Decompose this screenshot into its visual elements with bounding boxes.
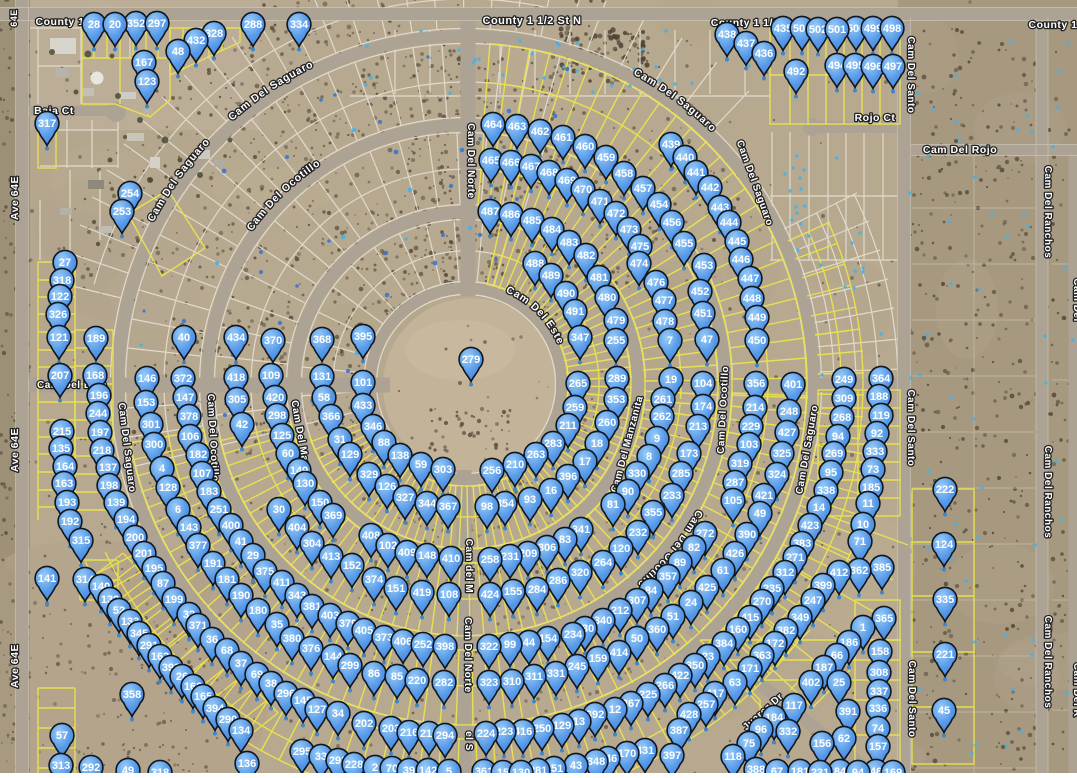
svg-text:105: 105 (724, 495, 742, 507)
svg-text:451: 451 (694, 308, 712, 320)
svg-text:24: 24 (685, 597, 698, 609)
svg-text:168: 168 (86, 370, 104, 382)
svg-text:183: 183 (200, 486, 218, 498)
svg-text:182: 182 (189, 449, 207, 461)
svg-text:8: 8 (646, 451, 652, 463)
svg-text:193: 193 (58, 497, 76, 509)
svg-text:40: 40 (178, 332, 190, 344)
svg-text:436: 436 (755, 48, 773, 60)
svg-text:82: 82 (688, 542, 700, 554)
svg-text:414: 414 (610, 647, 629, 659)
svg-text:Cam del M: Cam del M (463, 539, 474, 594)
svg-text:418: 418 (227, 372, 245, 384)
svg-text:146: 146 (138, 373, 156, 385)
svg-text:103: 103 (740, 439, 758, 451)
svg-text:121: 121 (50, 332, 68, 344)
svg-text:461: 461 (554, 132, 572, 144)
svg-text:426: 426 (726, 548, 744, 560)
svg-text:319: 319 (731, 458, 749, 470)
svg-text:194: 194 (117, 514, 136, 526)
svg-text:258: 258 (481, 554, 499, 566)
svg-text:234: 234 (564, 629, 583, 641)
svg-text:479: 479 (607, 315, 625, 327)
svg-text:284: 284 (528, 584, 547, 596)
svg-text:191: 191 (204, 558, 222, 570)
svg-text:478: 478 (656, 316, 674, 328)
svg-text:420: 420 (266, 392, 284, 404)
svg-text:450: 450 (748, 335, 766, 347)
svg-text:50: 50 (631, 633, 643, 645)
svg-text:264: 264 (594, 557, 613, 569)
svg-text:367: 367 (439, 501, 457, 513)
svg-text:197: 197 (91, 427, 109, 439)
svg-text:368: 368 (313, 334, 331, 346)
svg-text:308: 308 (870, 667, 888, 679)
svg-text:442: 442 (701, 182, 719, 194)
svg-text:356: 356 (747, 378, 765, 390)
svg-text:330: 330 (628, 468, 646, 480)
svg-text:199: 199 (165, 594, 183, 606)
svg-text:396: 396 (559, 471, 577, 483)
svg-text:452: 452 (691, 286, 709, 298)
svg-text:44: 44 (523, 637, 536, 649)
svg-text:301: 301 (142, 419, 160, 431)
svg-text:126: 126 (378, 481, 396, 493)
svg-text:473: 473 (620, 224, 638, 236)
svg-text:151: 151 (387, 583, 405, 595)
svg-text:344: 344 (418, 498, 437, 510)
svg-text:453: 453 (695, 260, 713, 272)
svg-text:303: 303 (434, 464, 452, 476)
svg-text:125: 125 (273, 430, 291, 442)
svg-text:492: 492 (787, 66, 805, 78)
svg-text:352: 352 (127, 18, 145, 30)
svg-text:49: 49 (754, 508, 766, 520)
svg-text:437: 437 (737, 38, 755, 50)
svg-text:410: 410 (442, 553, 460, 565)
svg-text:122: 122 (51, 291, 69, 303)
svg-text:171: 171 (741, 663, 759, 675)
svg-text:102: 102 (379, 540, 397, 552)
svg-text:501: 501 (828, 24, 846, 36)
svg-text:37: 37 (235, 658, 247, 670)
svg-text:466: 466 (502, 157, 520, 169)
svg-text:93: 93 (524, 494, 536, 506)
svg-text:347: 347 (571, 332, 589, 344)
svg-text:455: 455 (675, 238, 693, 250)
svg-text:148: 148 (418, 550, 436, 562)
svg-text:329: 329 (360, 469, 378, 481)
svg-text:124: 124 (935, 539, 954, 551)
svg-text:245: 245 (568, 661, 586, 673)
svg-text:71: 71 (854, 536, 866, 548)
svg-text:Cam Del R: Cam Del R (1071, 663, 1077, 718)
svg-text:61: 61 (717, 565, 729, 577)
svg-text:315: 315 (72, 535, 90, 547)
svg-text:64E: 64E (9, 9, 19, 27)
svg-text:Cam Del Ranchos: Cam Del Ranchos (1042, 616, 1053, 709)
svg-text:286: 286 (549, 575, 567, 587)
svg-text:73: 73 (867, 464, 879, 476)
svg-text:486: 486 (502, 209, 520, 221)
svg-text:14: 14 (813, 502, 826, 514)
svg-text:152: 152 (343, 560, 361, 572)
svg-text:232: 232 (629, 527, 647, 539)
svg-text:68: 68 (221, 645, 233, 657)
svg-text:244: 244 (89, 408, 108, 420)
svg-text:423: 423 (801, 520, 819, 532)
svg-text:327: 327 (396, 492, 414, 504)
svg-text:29: 29 (247, 550, 259, 562)
svg-text:355: 355 (644, 507, 662, 519)
svg-text:384: 384 (715, 638, 734, 650)
svg-text:480: 480 (598, 292, 616, 304)
svg-text:458: 458 (615, 168, 633, 180)
svg-text:398: 398 (436, 641, 454, 653)
svg-text:268: 268 (833, 412, 851, 424)
svg-text:447: 447 (741, 273, 759, 285)
svg-text:123: 123 (138, 76, 156, 88)
svg-text:370: 370 (264, 335, 282, 347)
svg-text:County 1: County 1 (36, 16, 85, 28)
svg-text:189: 189 (87, 333, 105, 345)
svg-text:390: 390 (738, 529, 756, 541)
svg-text:285: 285 (672, 468, 690, 480)
svg-text:147: 147 (176, 392, 194, 404)
svg-text:445: 445 (728, 236, 746, 248)
svg-text:324: 324 (768, 469, 787, 481)
svg-text:497: 497 (884, 61, 902, 73)
svg-text:51: 51 (667, 611, 679, 623)
svg-text:4: 4 (159, 463, 166, 475)
svg-text:159: 159 (589, 653, 607, 665)
svg-text:Cam Del Santo: Cam Del Santo (906, 660, 917, 737)
svg-text:7: 7 (667, 335, 673, 347)
svg-text:Cam Del Norte: Cam Del Norte (462, 617, 473, 692)
svg-text:Cam Del Ranchos: Cam Del Ranchos (1042, 446, 1053, 539)
svg-text:481: 481 (590, 272, 608, 284)
svg-text:372: 372 (174, 373, 192, 385)
svg-text:87: 87 (157, 578, 169, 590)
svg-text:299: 299 (341, 660, 359, 672)
svg-text:331: 331 (547, 668, 565, 680)
svg-text:483: 483 (560, 237, 578, 249)
svg-text:137: 137 (99, 462, 117, 474)
svg-text:98: 98 (481, 501, 493, 513)
svg-text:19: 19 (665, 374, 677, 386)
svg-text:Ave 64E: Ave 64E (9, 644, 21, 688)
svg-text:449: 449 (748, 312, 766, 324)
svg-text:213: 213 (689, 421, 707, 433)
svg-text:Cam Del Santo: Cam Del Santo (905, 36, 916, 113)
svg-text:130: 130 (296, 478, 314, 490)
svg-text:129: 129 (341, 449, 359, 461)
svg-text:108: 108 (440, 589, 458, 601)
svg-text:482: 482 (577, 250, 595, 262)
svg-text:353: 353 (607, 394, 625, 406)
svg-text:1: 1 (860, 622, 866, 634)
svg-text:104: 104 (694, 378, 713, 390)
svg-text:30: 30 (273, 504, 285, 516)
svg-text:376: 376 (302, 643, 320, 655)
svg-text:155: 155 (504, 586, 522, 598)
svg-text:438: 438 (718, 29, 736, 41)
svg-text:456: 456 (663, 217, 681, 229)
svg-text:Cam Del Ranchos: Cam Del Ranchos (1042, 166, 1053, 259)
svg-text:269: 269 (825, 448, 843, 460)
svg-text:256: 256 (483, 465, 501, 477)
svg-text:444: 444 (720, 217, 739, 229)
svg-text:Cam Del Santo: Cam Del Santo (905, 389, 916, 466)
svg-text:434: 434 (227, 332, 246, 344)
svg-text:322: 322 (480, 641, 498, 653)
svg-text:409: 409 (398, 547, 416, 559)
svg-text:254: 254 (121, 188, 140, 200)
svg-text:35: 35 (271, 619, 283, 631)
svg-text:485: 485 (523, 215, 541, 227)
svg-text:380: 380 (283, 633, 301, 645)
svg-text:95: 95 (825, 467, 837, 479)
svg-text:446: 446 (732, 254, 750, 266)
svg-text:163: 163 (55, 478, 73, 490)
svg-text:173: 173 (680, 448, 698, 460)
svg-text:365: 365 (875, 613, 893, 625)
svg-text:432: 432 (187, 35, 205, 47)
svg-text:86: 86 (368, 668, 380, 680)
svg-text:210: 210 (506, 459, 524, 471)
svg-text:229: 229 (742, 421, 760, 433)
svg-text:362: 362 (850, 565, 868, 577)
svg-text:385: 385 (873, 562, 891, 574)
svg-text:470: 470 (574, 184, 592, 196)
svg-text:20: 20 (109, 19, 121, 31)
svg-text:441: 441 (687, 167, 705, 179)
svg-text:472: 472 (607, 208, 625, 220)
svg-text:378: 378 (180, 411, 198, 423)
svg-text:317: 317 (38, 118, 56, 130)
svg-text:253: 253 (113, 206, 131, 218)
svg-text:395: 395 (354, 331, 372, 343)
svg-text:263: 263 (527, 449, 545, 461)
svg-text:Ave 64E: Ave 64E (9, 428, 21, 472)
svg-text:498: 498 (883, 23, 901, 35)
svg-text:119: 119 (872, 410, 890, 422)
svg-text:427: 427 (778, 427, 796, 439)
svg-text:88: 88 (378, 437, 390, 449)
svg-text:300: 300 (145, 439, 163, 451)
svg-text:180: 180 (249, 605, 267, 617)
svg-text:457: 457 (634, 183, 652, 195)
svg-text:252: 252 (414, 639, 432, 651)
svg-text:425: 425 (698, 582, 716, 594)
svg-text:305: 305 (228, 394, 246, 406)
svg-text:154: 154 (539, 633, 558, 645)
svg-text:491: 491 (566, 306, 584, 318)
svg-text:448: 448 (743, 293, 761, 305)
svg-text:6: 6 (175, 504, 181, 516)
svg-text:County 1: County 1 (1029, 19, 1077, 31)
svg-text:County 1 1/2 St N: County 1 1/2 St N (483, 15, 582, 27)
svg-text:463: 463 (508, 121, 526, 133)
svg-text:360: 360 (648, 624, 666, 636)
svg-text:464: 464 (484, 119, 503, 131)
svg-text:el S: el S (463, 731, 474, 751)
svg-text:405: 405 (355, 625, 373, 637)
svg-text:377: 377 (189, 540, 207, 552)
svg-text:496: 496 (864, 61, 882, 73)
svg-text:Cam Del Rojo: Cam Del Rojo (923, 144, 997, 156)
svg-text:298: 298 (268, 410, 286, 422)
svg-text:192: 192 (61, 516, 79, 528)
svg-text:231: 231 (501, 551, 519, 563)
svg-text:374: 374 (365, 574, 384, 586)
svg-text:60: 60 (282, 448, 294, 460)
svg-text:413: 413 (322, 551, 340, 563)
svg-text:211: 211 (559, 420, 577, 432)
svg-text:406: 406 (394, 636, 412, 648)
svg-text:158: 158 (871, 646, 889, 658)
svg-text:47: 47 (701, 334, 713, 346)
svg-text:167: 167 (135, 57, 153, 69)
svg-text:11: 11 (862, 498, 874, 510)
svg-text:190: 190 (232, 590, 250, 602)
svg-text:335: 335 (936, 594, 954, 606)
svg-text:259: 259 (566, 402, 584, 414)
svg-text:333: 333 (866, 446, 884, 458)
svg-text:366: 366 (322, 411, 340, 423)
svg-text:233: 233 (663, 490, 681, 502)
svg-text:99: 99 (504, 639, 516, 651)
svg-text:139: 139 (107, 497, 125, 509)
svg-text:214: 214 (746, 402, 765, 414)
svg-text:289: 289 (608, 373, 626, 385)
svg-text:255: 255 (607, 335, 625, 347)
svg-text:128: 128 (159, 482, 177, 494)
svg-text:90: 90 (622, 486, 634, 498)
svg-text:247: 247 (804, 595, 822, 607)
svg-text:260: 260 (598, 417, 616, 429)
svg-text:312: 312 (776, 567, 794, 579)
svg-text:357: 357 (659, 571, 677, 583)
svg-text:174: 174 (694, 401, 713, 413)
svg-text:460: 460 (576, 141, 594, 153)
svg-text:279: 279 (462, 354, 480, 366)
svg-text:249: 249 (835, 374, 853, 386)
svg-text:433: 433 (354, 400, 372, 412)
svg-text:42: 42 (236, 419, 248, 431)
svg-text:92: 92 (871, 428, 883, 440)
svg-text:Rojo Ct: Rojo Ct (855, 112, 896, 124)
svg-text:412: 412 (830, 567, 848, 579)
svg-text:265: 265 (569, 378, 587, 390)
svg-text:196: 196 (90, 390, 108, 402)
svg-text:Cam Del: Cam Del (1071, 278, 1077, 322)
svg-text:401: 401 (784, 379, 802, 391)
svg-text:59: 59 (415, 459, 427, 471)
svg-text:Cam Del Norte: Cam Del Norte (465, 123, 476, 198)
svg-text:490: 490 (557, 288, 575, 300)
svg-text:188: 188 (870, 391, 888, 403)
svg-text:106: 106 (181, 431, 199, 443)
svg-text:364: 364 (872, 373, 891, 385)
svg-text:58: 58 (318, 392, 330, 404)
svg-text:465: 465 (482, 155, 500, 167)
svg-text:326: 326 (49, 309, 67, 321)
svg-text:221: 221 (936, 649, 954, 661)
svg-text:81: 81 (607, 499, 619, 511)
svg-text:487: 487 (481, 206, 499, 218)
svg-text:107: 107 (193, 468, 211, 480)
svg-text:334: 334 (290, 19, 309, 31)
svg-text:304: 304 (303, 538, 322, 550)
svg-text:16: 16 (545, 485, 557, 497)
svg-text:454: 454 (650, 199, 669, 211)
svg-text:181: 181 (218, 574, 236, 586)
svg-text:404: 404 (288, 522, 307, 534)
svg-text:143: 143 (180, 522, 198, 534)
svg-text:9: 9 (654, 433, 660, 445)
svg-text:476: 476 (647, 277, 665, 289)
svg-text:131: 131 (313, 371, 331, 383)
svg-text:207: 207 (51, 370, 69, 382)
svg-text:459: 459 (597, 152, 615, 164)
svg-text:153: 153 (137, 397, 155, 409)
svg-text:489: 489 (542, 270, 560, 282)
svg-text:101: 101 (354, 377, 372, 389)
svg-text:477: 477 (655, 295, 673, 307)
svg-text:474: 474 (630, 258, 649, 270)
svg-text:135: 135 (52, 443, 70, 455)
svg-text:248: 248 (780, 406, 798, 418)
svg-text:419: 419 (413, 587, 431, 599)
svg-text:17: 17 (579, 456, 591, 468)
svg-text:262: 262 (653, 411, 671, 423)
svg-text:325: 325 (773, 448, 791, 460)
svg-text:288: 288 (244, 19, 262, 31)
svg-text:309: 309 (835, 393, 853, 405)
svg-text:18: 18 (591, 438, 603, 450)
svg-text:141: 141 (38, 573, 56, 585)
svg-text:120: 120 (612, 543, 630, 555)
svg-text:48: 48 (172, 46, 184, 58)
svg-text:297: 297 (148, 18, 166, 30)
svg-text:421: 421 (755, 490, 773, 502)
svg-text:287: 287 (726, 477, 744, 489)
svg-text:28: 28 (88, 19, 100, 31)
svg-text:484: 484 (543, 224, 562, 236)
svg-text:27: 27 (59, 257, 71, 269)
svg-text:138: 138 (391, 450, 409, 462)
svg-text:424: 424 (481, 589, 500, 601)
svg-text:222: 222 (936, 484, 954, 496)
svg-text:462: 462 (531, 126, 549, 138)
svg-text:369: 369 (324, 510, 342, 522)
svg-text:109: 109 (262, 370, 280, 382)
svg-text:Ave 64E: Ave 64E (9, 176, 21, 220)
svg-text:320: 320 (571, 567, 589, 579)
svg-text:83: 83 (559, 534, 571, 546)
